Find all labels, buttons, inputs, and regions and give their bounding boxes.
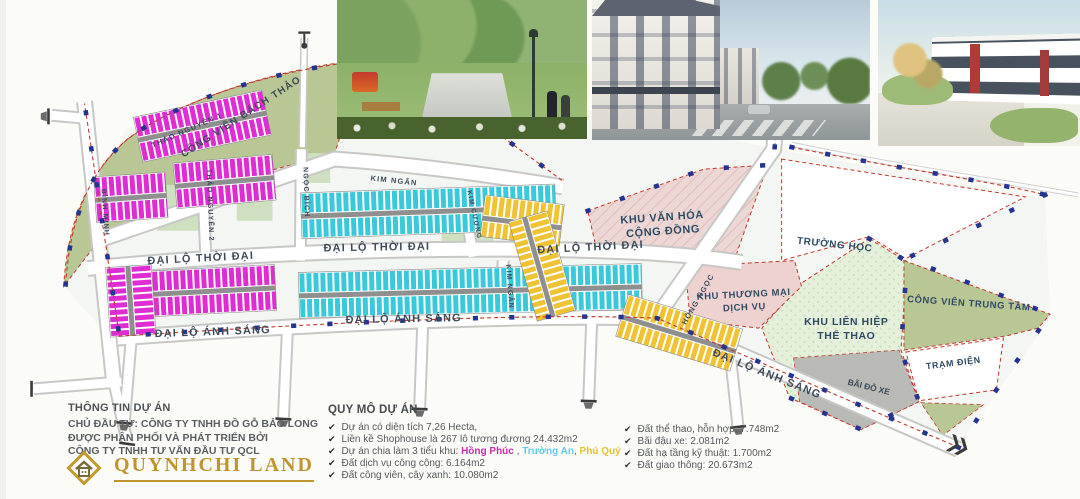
street-mansard-roof [592, 0, 720, 16]
svg-text:KHU LIÊN HIỆP: KHU LIÊN HIỆP [804, 315, 888, 328]
check-icon: ✔ [624, 460, 632, 470]
project-scale-title: QUY MÔ DỰ ÁN [328, 404, 628, 416]
zone-truong-an: Trường An [522, 446, 574, 457]
project-scale-block: QUY MÔ DỰ ÁN ✔Dự án có diện tích 7,26 He… [328, 404, 628, 482]
scale-item-subzones: ✔Dự án chia làm 3 tiểu khu: Hồng Phúc , … [328, 446, 628, 458]
check-icon: ✔ [624, 424, 632, 434]
check-icon: ✔ [328, 446, 336, 456]
street-lamp-icon [298, 31, 310, 48]
aerial-lawn-2 [990, 108, 1077, 143]
scale-item-shophouse: ✔Liền kề Shophouse là 267 lô tương đương… [328, 434, 628, 446]
masterplan-brochure: CÔNG VIÊN BÁCH THẢO ĐẠI LỘ THỜI ĐẠI ĐẠI … [0, 0, 1080, 499]
project-info-title: THÔNG TIN DỰ ÁN [68, 402, 333, 414]
street-car [748, 105, 770, 114]
park-bench [362, 102, 400, 111]
check-icon: ✔ [624, 448, 632, 458]
photo-aerial-complex-render [878, 0, 1080, 146]
aerial-accent-panel [970, 44, 980, 94]
park-lamp-post [532, 36, 535, 122]
photo-park-render [337, 0, 587, 139]
scale-item-park-land: ✔Đất công viên, cây xanh: 10.080m2 [328, 470, 628, 482]
land-item-infrastructure: ✔Đất hạ tầng kỹ thuật: 1.700m2 [624, 448, 884, 460]
aerial-tree [886, 32, 946, 102]
street-trees [759, 53, 870, 103]
quynhchi-land-logo: QUYNHCHI LAND [64, 448, 324, 488]
land-item-traffic: ✔Đất giao thông: 20.673m2 [624, 460, 884, 472]
park-playground [352, 72, 378, 92]
street-awning [592, 87, 720, 94]
label-dai-lo-thoi-dai-center: ĐẠI LỘ THỜI ĐẠI [323, 240, 430, 255]
land-item-parking: ✔Bãi đậu xe: 2.081m2 [624, 436, 884, 448]
check-icon: ✔ [328, 470, 336, 480]
check-icon: ✔ [328, 434, 336, 444]
logo-text: QUYNHCHI LAND [114, 454, 314, 482]
zone-hong-phuc: Hồng Phúc [461, 446, 514, 457]
zone-phu-quy: Phú Quý [580, 446, 621, 457]
logo-house-diamond-icon [64, 448, 104, 488]
scale-item-public-service: ✔Đất dịch vụ công cộng: 6.164m2 [328, 458, 628, 470]
aerial-accent-panel-2 [1040, 50, 1049, 97]
street-shophouse-building [592, 0, 720, 129]
project-distribution-line: ĐƯỢC PHÂN PHỐI VÀ PHÁT TRIỂN BỞI [68, 432, 333, 446]
project-investor-line: CHỦ ĐẦU TƯ: CÔNG TY TNHH ĐỒ GỖ BẢO LONG [68, 418, 333, 432]
park-flowerbed [337, 117, 587, 139]
land-use-list: ✔Đất thể thao, hỗn hợp: 7.748m2 ✔Bãi đậu… [624, 424, 884, 472]
scale-item-area: ✔Dự án có diện tích 7,26 Hecta, [328, 422, 628, 434]
svg-text:THỂ THAO: THỂ THAO [817, 329, 875, 342]
label-dai-lo-anh-sang-center: ĐẠI LỘ ÁNH SÁNG [345, 311, 461, 326]
svg-text:DỊCH VỤ: DỊCH VỤ [723, 301, 767, 314]
check-icon: ✔ [624, 436, 632, 446]
check-icon: ✔ [328, 458, 336, 468]
park-path [421, 73, 513, 123]
check-icon: ✔ [328, 422, 336, 432]
photo-shophouse-street-render [592, 0, 870, 140]
land-item-sport: ✔Đất thể thao, hỗn hợp: 7.748m2 [624, 424, 884, 436]
